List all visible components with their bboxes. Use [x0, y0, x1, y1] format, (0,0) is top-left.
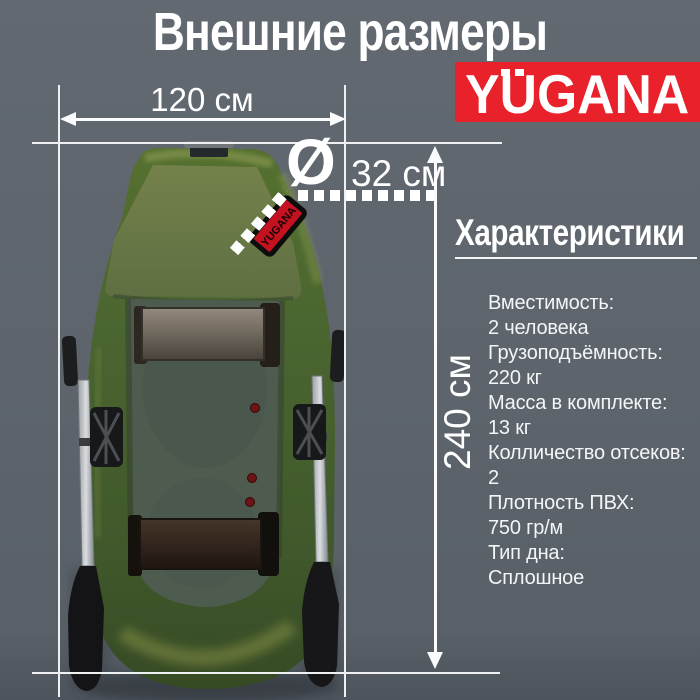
front-seat: [134, 303, 280, 367]
diameter-dotted-line: [298, 190, 434, 201]
product-infographic: Внешние размеры YUGANA: [0, 0, 700, 700]
valve-cap: [251, 404, 260, 413]
valve-cap: [248, 474, 257, 483]
extension-line-right: [344, 85, 346, 697]
specs-list: Вместимость: 2 человека Грузоподъёмность…: [488, 291, 698, 591]
width-dimension-label: 120 см: [58, 81, 346, 119]
specs-heading: Характеристики: [455, 212, 684, 254]
spec-label: Вместимость:: [488, 291, 698, 316]
spec-value: 750 гр/м: [488, 516, 698, 541]
spec-label: Колличество отсеков:: [488, 441, 698, 466]
page-title: Внешние размеры: [63, 1, 637, 63]
spec-value: 13 кг: [488, 416, 698, 441]
rear-seat: [128, 512, 279, 576]
brand-logo-text: YUGANA: [465, 63, 689, 122]
spec-label: Масса в комплекте:: [488, 391, 698, 416]
boat-photo: YUGANA: [50, 138, 360, 700]
spec-value: 220 кг: [488, 366, 698, 391]
arrowhead-down-icon: [427, 652, 443, 669]
left-oarlock: [90, 407, 123, 467]
spec-value: 2: [488, 466, 698, 491]
extension-line-left: [58, 85, 60, 697]
spec-label: Тип дна:: [488, 541, 698, 566]
logo-umlaut-mark-icon: [515, 69, 524, 76]
diameter-symbol: Ø: [286, 130, 336, 194]
right-oarlock: [293, 404, 326, 460]
brand-logo: YUGANA: [455, 62, 700, 122]
spec-label: Плотность ПВХ:: [488, 491, 698, 516]
spec-value: Сплошное: [488, 566, 698, 591]
logo-umlaut-mark-icon: [501, 69, 510, 76]
valve-cap: [246, 498, 255, 507]
specs-heading-underline: [455, 257, 697, 259]
length-dimension-label: 240 см: [437, 305, 479, 470]
extension-line-top: [32, 142, 502, 144]
diameter-dimension-label: 32 см: [351, 153, 446, 195]
spec-value: 2 человека: [488, 316, 698, 341]
spec-label: Грузоподъёмность:: [488, 341, 698, 366]
extension-line-bottom: [32, 672, 500, 674]
